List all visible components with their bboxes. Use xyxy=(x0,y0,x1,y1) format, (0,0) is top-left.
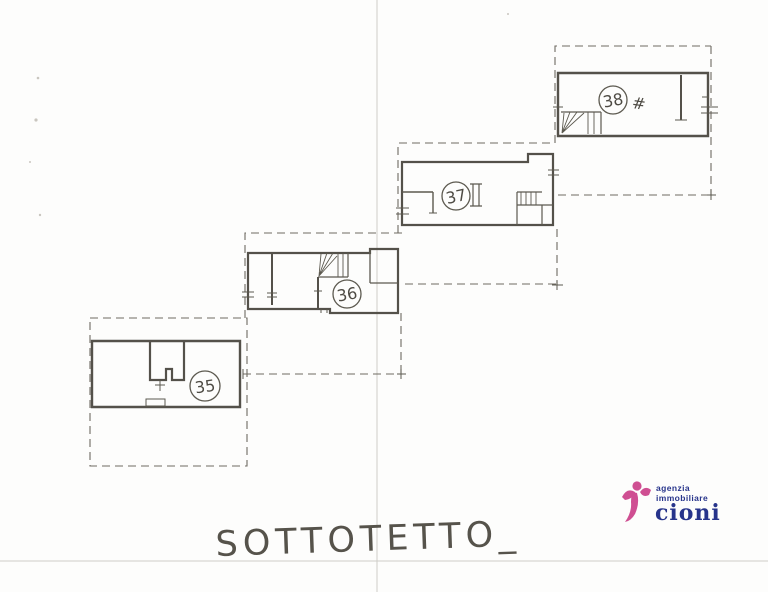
unit-38-right-window-tick xyxy=(701,97,718,113)
double-line-symbol xyxy=(470,184,482,206)
unit-37-plan: 37 xyxy=(396,154,559,225)
staircase-icon xyxy=(517,192,553,225)
unit-38-plan: 38 # xyxy=(553,73,718,136)
scanned-floor-plan-page: 35 36 xyxy=(0,0,768,592)
scan-specks xyxy=(29,13,509,216)
unit-38-number: 38 xyxy=(601,89,624,111)
unit-37-number: 37 xyxy=(444,185,468,208)
unit-37-outline xyxy=(402,154,553,225)
unit-36-number: 36 xyxy=(335,283,358,305)
survey-tick-marks xyxy=(243,190,716,379)
logo-agency-name: cioni xyxy=(655,500,721,526)
dashed-boundary-lines xyxy=(90,46,716,466)
fold-line xyxy=(0,0,768,592)
unit-36-right-room xyxy=(370,249,398,283)
unit-35-centerline xyxy=(155,380,165,391)
unit-36-plan: 36 xyxy=(242,249,398,313)
unit-35-plan: 35 xyxy=(92,341,240,407)
unit-37-partition xyxy=(402,192,433,213)
logo-line1: agenzia xyxy=(656,483,690,493)
unit-35-door-threshold xyxy=(146,399,165,406)
unit-35-label: 35 xyxy=(190,371,220,401)
spiral-staircase-icon xyxy=(318,253,348,277)
winder-staircase-icon xyxy=(561,112,601,134)
logo-figure-icon xyxy=(622,481,651,522)
unit-37-label: 37 xyxy=(442,182,470,210)
floor-plan-canvas: 35 36 xyxy=(0,0,768,592)
unit-35-number: 35 xyxy=(194,376,217,398)
unit-38-hash-annotation: # xyxy=(631,93,647,114)
unit-36-outline xyxy=(248,249,398,313)
unit-35-stair-room xyxy=(150,341,184,380)
page-title: SOTTOTETTO_ xyxy=(215,514,521,565)
unit-36-label: 36 xyxy=(333,280,361,308)
unit-38-label: 38 # xyxy=(599,86,647,114)
agency-logo: agenzia immobiliare cioni xyxy=(622,481,721,526)
